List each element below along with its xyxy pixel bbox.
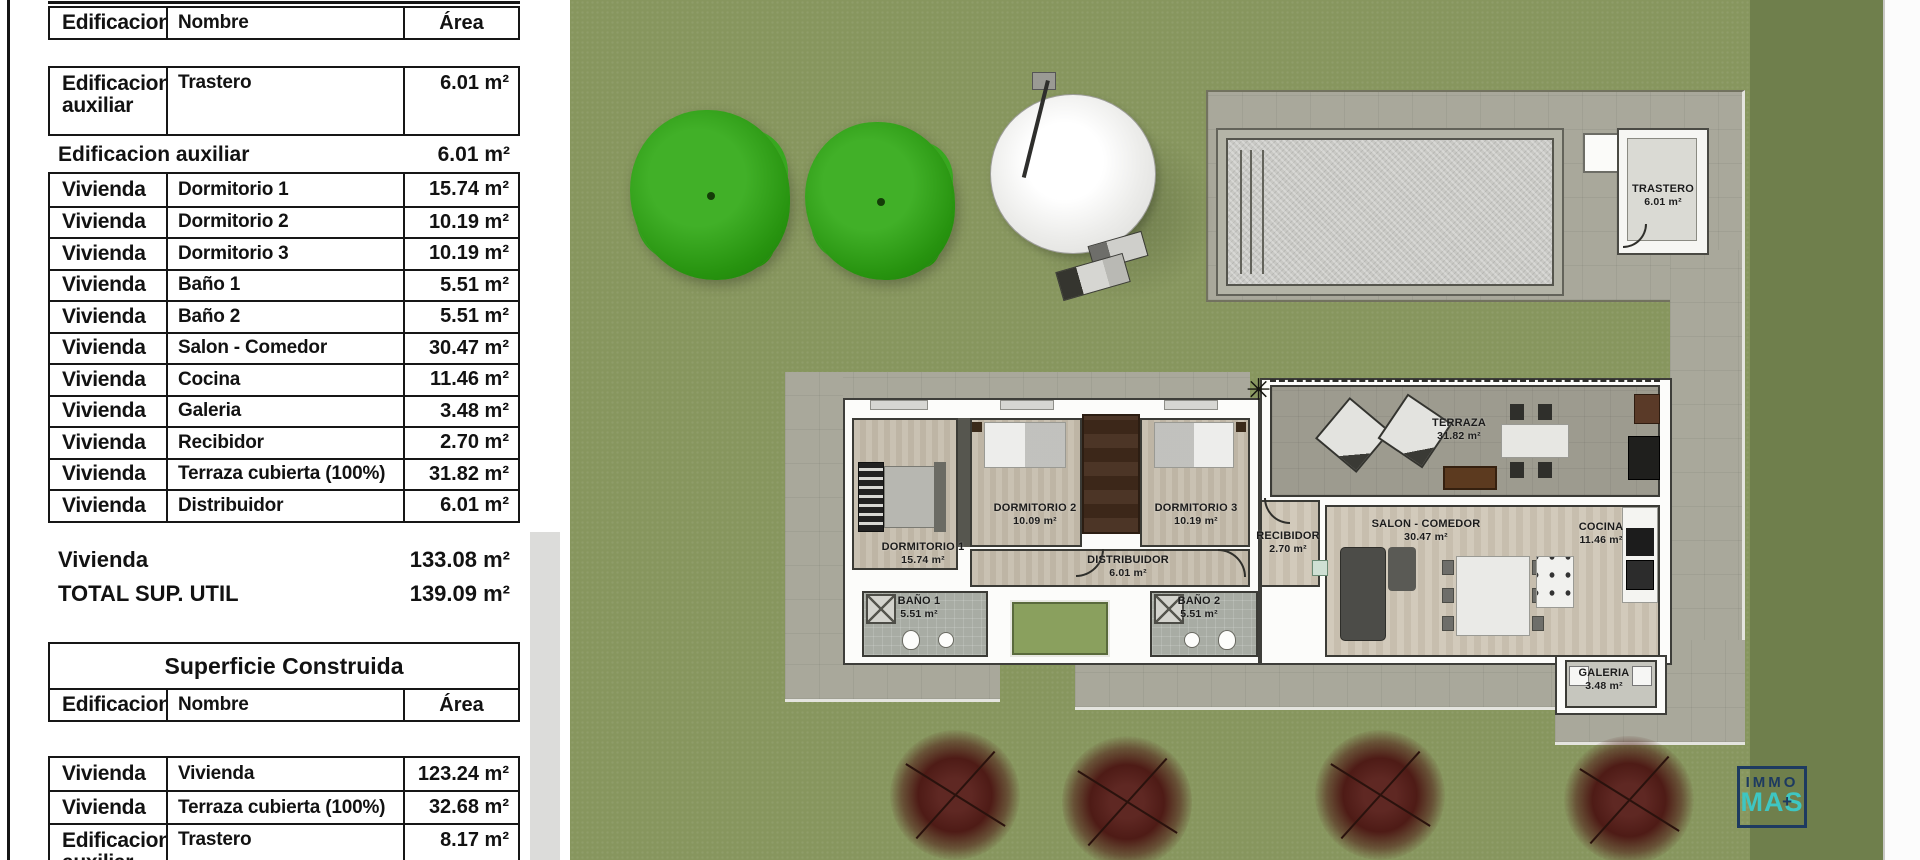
toilet	[1218, 630, 1236, 650]
cell-area: 123.24 m²	[403, 758, 518, 790]
cell-area: 5.51 m²	[403, 302, 518, 332]
cell-area: 5.51 m²	[403, 271, 518, 301]
nightstand	[1236, 422, 1246, 432]
superficie-construida-header: Superficie Construida Edificacion Nombre…	[48, 642, 520, 722]
outdoor-sink	[1628, 436, 1660, 480]
wardrobe	[1082, 414, 1140, 534]
toilet	[902, 630, 920, 650]
vivienda-subtotal-row: Vivienda 133.08 m²	[48, 545, 520, 575]
table-row: Vivienda Terraza cubierta (100%) 31.82 m…	[50, 458, 518, 490]
bed	[884, 466, 936, 528]
window	[870, 400, 928, 410]
cell-area: 6.01 m²	[403, 491, 518, 521]
swimming-pool	[1216, 128, 1564, 296]
sofa	[1340, 547, 1386, 641]
table-row: Vivienda Galeria 3.48 m²	[50, 395, 518, 427]
bed	[1154, 422, 1234, 468]
cell-edificacion: Vivienda	[50, 397, 166, 427]
fridge	[1626, 560, 1654, 590]
table-row: Vivienda Dormitorio 2 10.19 m²	[50, 206, 518, 238]
total-value: 139.09 m²	[410, 581, 510, 607]
partition-wall	[958, 418, 970, 547]
washer	[1632, 666, 1652, 686]
sink	[1184, 632, 1200, 648]
cell-nombre: Terraza cubierta (100%)	[166, 792, 403, 823]
cell-area: 15.74 m²	[403, 174, 518, 206]
green-tree-icon	[630, 110, 790, 280]
col-header-edificacion: Edificacion	[50, 690, 166, 720]
cell-nombre: Trastero	[166, 68, 403, 134]
room-label-galeria: GALERIA 3.48 m²	[1579, 666, 1630, 694]
cell-edificacion: Vivienda	[50, 239, 166, 269]
table-row: Vivienda Dormitorio 1 15.74 m²	[50, 174, 518, 206]
cell-area: 10.19 m²	[403, 208, 518, 238]
green-tree-icon	[805, 122, 955, 280]
cell-edificacion: Vivienda	[50, 302, 166, 332]
table-row: Vivienda Terraza cubierta (100%) 32.68 m…	[50, 790, 518, 823]
cell-edificacion: Vivienda	[50, 174, 166, 206]
cell-nombre: Dormitorio 2	[166, 208, 403, 238]
room-label-trastero: TRASTERO 6.01 m²	[1632, 182, 1694, 210]
cell-nombre: Dormitorio 1	[166, 174, 403, 206]
rug	[1443, 466, 1497, 490]
subtotal-value: 6.01 m²	[438, 143, 510, 167]
cell-area: 11.46 m²	[403, 365, 518, 395]
cell-edificacion: Vivienda	[50, 428, 166, 458]
col-header-area: Área	[403, 8, 518, 38]
plant-pot	[1312, 560, 1328, 576]
logo-text-mas: MAS	[1741, 790, 1804, 816]
cell-nombre: Dormitorio 3	[166, 239, 403, 269]
total-sup-util-row: TOTAL SUP. UTIL 139.09 m²	[48, 578, 520, 610]
room-label-dormitorio-3: DORMITORIO 3 10.19 m²	[1155, 501, 1238, 529]
table-row: Edificacion auxiliar Trastero 8.17 m²	[50, 823, 518, 860]
room-label-bano-1: BAÑO 1 5.51 m²	[898, 594, 941, 622]
cell-area: 2.70 m²	[403, 428, 518, 458]
dining-table	[1456, 556, 1530, 636]
cell-edificacion: Vivienda	[50, 334, 166, 364]
col-header-area: Área	[403, 690, 518, 720]
cell-edificacion: Vivienda	[50, 208, 166, 238]
terrace-table	[1501, 424, 1569, 458]
cell-area: 32.68 m²	[403, 792, 518, 823]
table-row: Vivienda Distribuidor 6.01 m²	[50, 489, 518, 521]
cell-nombre: Distribuidor	[166, 491, 403, 521]
room-label-recibidor: RECIBIDOR 2.70 m²	[1256, 529, 1320, 557]
cell-area: 31.82 m²	[403, 460, 518, 490]
cell-edificacion: Edificacion auxiliar	[50, 825, 166, 860]
superficie-construida-title: Superficie Construida	[50, 644, 518, 688]
table-row: Vivienda Vivienda 123.24 m²	[50, 758, 518, 790]
table-row: Vivienda Recibidor 2.70 m²	[50, 426, 518, 458]
room-label-cocina: COCINA 11.46 m²	[1579, 520, 1624, 548]
cell-area: 30.47 m²	[403, 334, 518, 364]
autumn-tree-icon	[1062, 736, 1192, 860]
cell-nombre: Trastero	[166, 825, 403, 860]
oven	[1626, 528, 1654, 556]
cell-edificacion: Vivienda	[50, 491, 166, 521]
table-row: Vivienda Baño 2 5.51 m²	[50, 300, 518, 332]
bbq-cabinet	[1634, 394, 1660, 424]
cell-nombre: Vivienda	[166, 758, 403, 790]
cell-area: 6.01 m²	[403, 68, 518, 134]
area-tables-panel: Edificacion Nombre Área Edificacion auxi…	[0, 0, 570, 860]
cell-nombre: Salon - Comedor	[166, 334, 403, 364]
cell-edificacion: Vivienda	[50, 758, 166, 790]
room-label-bano-2: BAÑO 2 5.51 m²	[1178, 594, 1221, 622]
bed-footboard	[934, 462, 946, 532]
aux-subtotal-row: Edificacion auxiliar 6.01 m²	[48, 140, 520, 170]
cell-nombre: Galeria	[166, 397, 403, 427]
immomas-logo: IMMO MAS +	[1737, 766, 1807, 828]
table-row: Vivienda Salon - Comedor 30.47 m²	[50, 332, 518, 364]
col-header-nombre: Nombre	[166, 690, 403, 720]
panel-shadow-strip	[530, 532, 560, 860]
page-right-margin	[1883, 0, 1920, 860]
autumn-tree-icon	[890, 730, 1020, 860]
cell-area: 10.19 m²	[403, 239, 518, 269]
nightstand	[972, 422, 982, 432]
room-label-dormitorio-1: DORMITORIO 1 15.74 m²	[882, 540, 965, 568]
subtotal-label: Vivienda	[58, 547, 148, 573]
room-label-distribuidor: DISTRIBUIDOR 6.01 m²	[1087, 553, 1169, 581]
cell-edificacion: Vivienda	[50, 792, 166, 823]
kitchen-island-hob	[1536, 556, 1574, 608]
room-label-terraza: TERRAZA 31.82 m²	[1432, 416, 1486, 444]
table-row: Vivienda Cocina 11.46 m²	[50, 363, 518, 395]
utility-box	[1583, 133, 1619, 173]
superficie-construida-rows: Vivienda Vivienda 123.24 m² Vivienda Ter…	[48, 756, 520, 860]
aux-row-box: Edificacion auxiliar Trastero 6.01 m²	[48, 66, 520, 136]
autumn-tree-icon	[1564, 736, 1694, 860]
floorplan-sheet: Edificacion Nombre Área Edificacion auxi…	[0, 0, 1920, 860]
pool-water	[1226, 138, 1554, 286]
cell-nombre: Recibidor	[166, 428, 403, 458]
subtotal-label: Edificacion auxiliar	[58, 143, 249, 167]
plant-icon: ✳	[1246, 376, 1271, 406]
sink	[938, 632, 954, 648]
room-label-salon-comedor: SALON - COMEDOR 30.47 m²	[1372, 517, 1481, 545]
total-label: TOTAL SUP. UTIL	[58, 581, 239, 607]
cell-edificacion: Vivienda	[50, 365, 166, 395]
cell-nombre: Terraza cubierta (100%)	[166, 460, 403, 490]
logo-plus-icon: +	[1782, 792, 1792, 812]
superficie-util-rows: Vivienda Dormitorio 1 15.74 m² Vivienda …	[48, 172, 520, 523]
bed-pillows	[858, 462, 884, 532]
autumn-tree-icon	[1315, 730, 1445, 860]
shower	[866, 594, 896, 624]
col-header-edificacion: Edificacion	[50, 8, 166, 38]
page-left-edge	[7, 0, 10, 860]
inner-courtyard	[1010, 600, 1110, 657]
cell-area: 8.17 m²	[403, 825, 518, 860]
room-label-dormitorio-2: DORMITORIO 2 10.09 m²	[994, 501, 1077, 529]
superficie-util-header: Edificacion Nombre Área	[48, 6, 520, 40]
cell-nombre: Baño 1	[166, 271, 403, 301]
cell-edificacion: Vivienda	[50, 460, 166, 490]
window	[1000, 400, 1054, 410]
armchair	[1388, 547, 1416, 591]
parasol-icon	[990, 94, 1156, 254]
col-header-nombre: Nombre	[166, 8, 403, 38]
table-row: Vivienda Dormitorio 3 10.19 m²	[50, 237, 518, 269]
bed	[984, 422, 1066, 468]
roof-overhang-dashline	[1270, 379, 1660, 382]
cell-area: 3.48 m²	[403, 397, 518, 427]
table-row: Vivienda Baño 1 5.51 m²	[50, 269, 518, 301]
site-plan: ✳ TRASTERO 6.01 m² TERRAZA 31.82 m² DORM…	[570, 0, 1920, 860]
cut-row-line	[48, 1, 520, 4]
cell-edificacion: Vivienda	[50, 271, 166, 301]
cell-nombre: Cocina	[166, 365, 403, 395]
cell-nombre: Baño 2	[166, 302, 403, 332]
grass-right-band	[1750, 0, 1885, 860]
cell-edificacion: Edificacion auxiliar	[50, 68, 166, 134]
window	[1164, 400, 1218, 410]
door-arc	[1623, 224, 1647, 248]
subtotal-value: 133.08 m²	[410, 547, 510, 573]
